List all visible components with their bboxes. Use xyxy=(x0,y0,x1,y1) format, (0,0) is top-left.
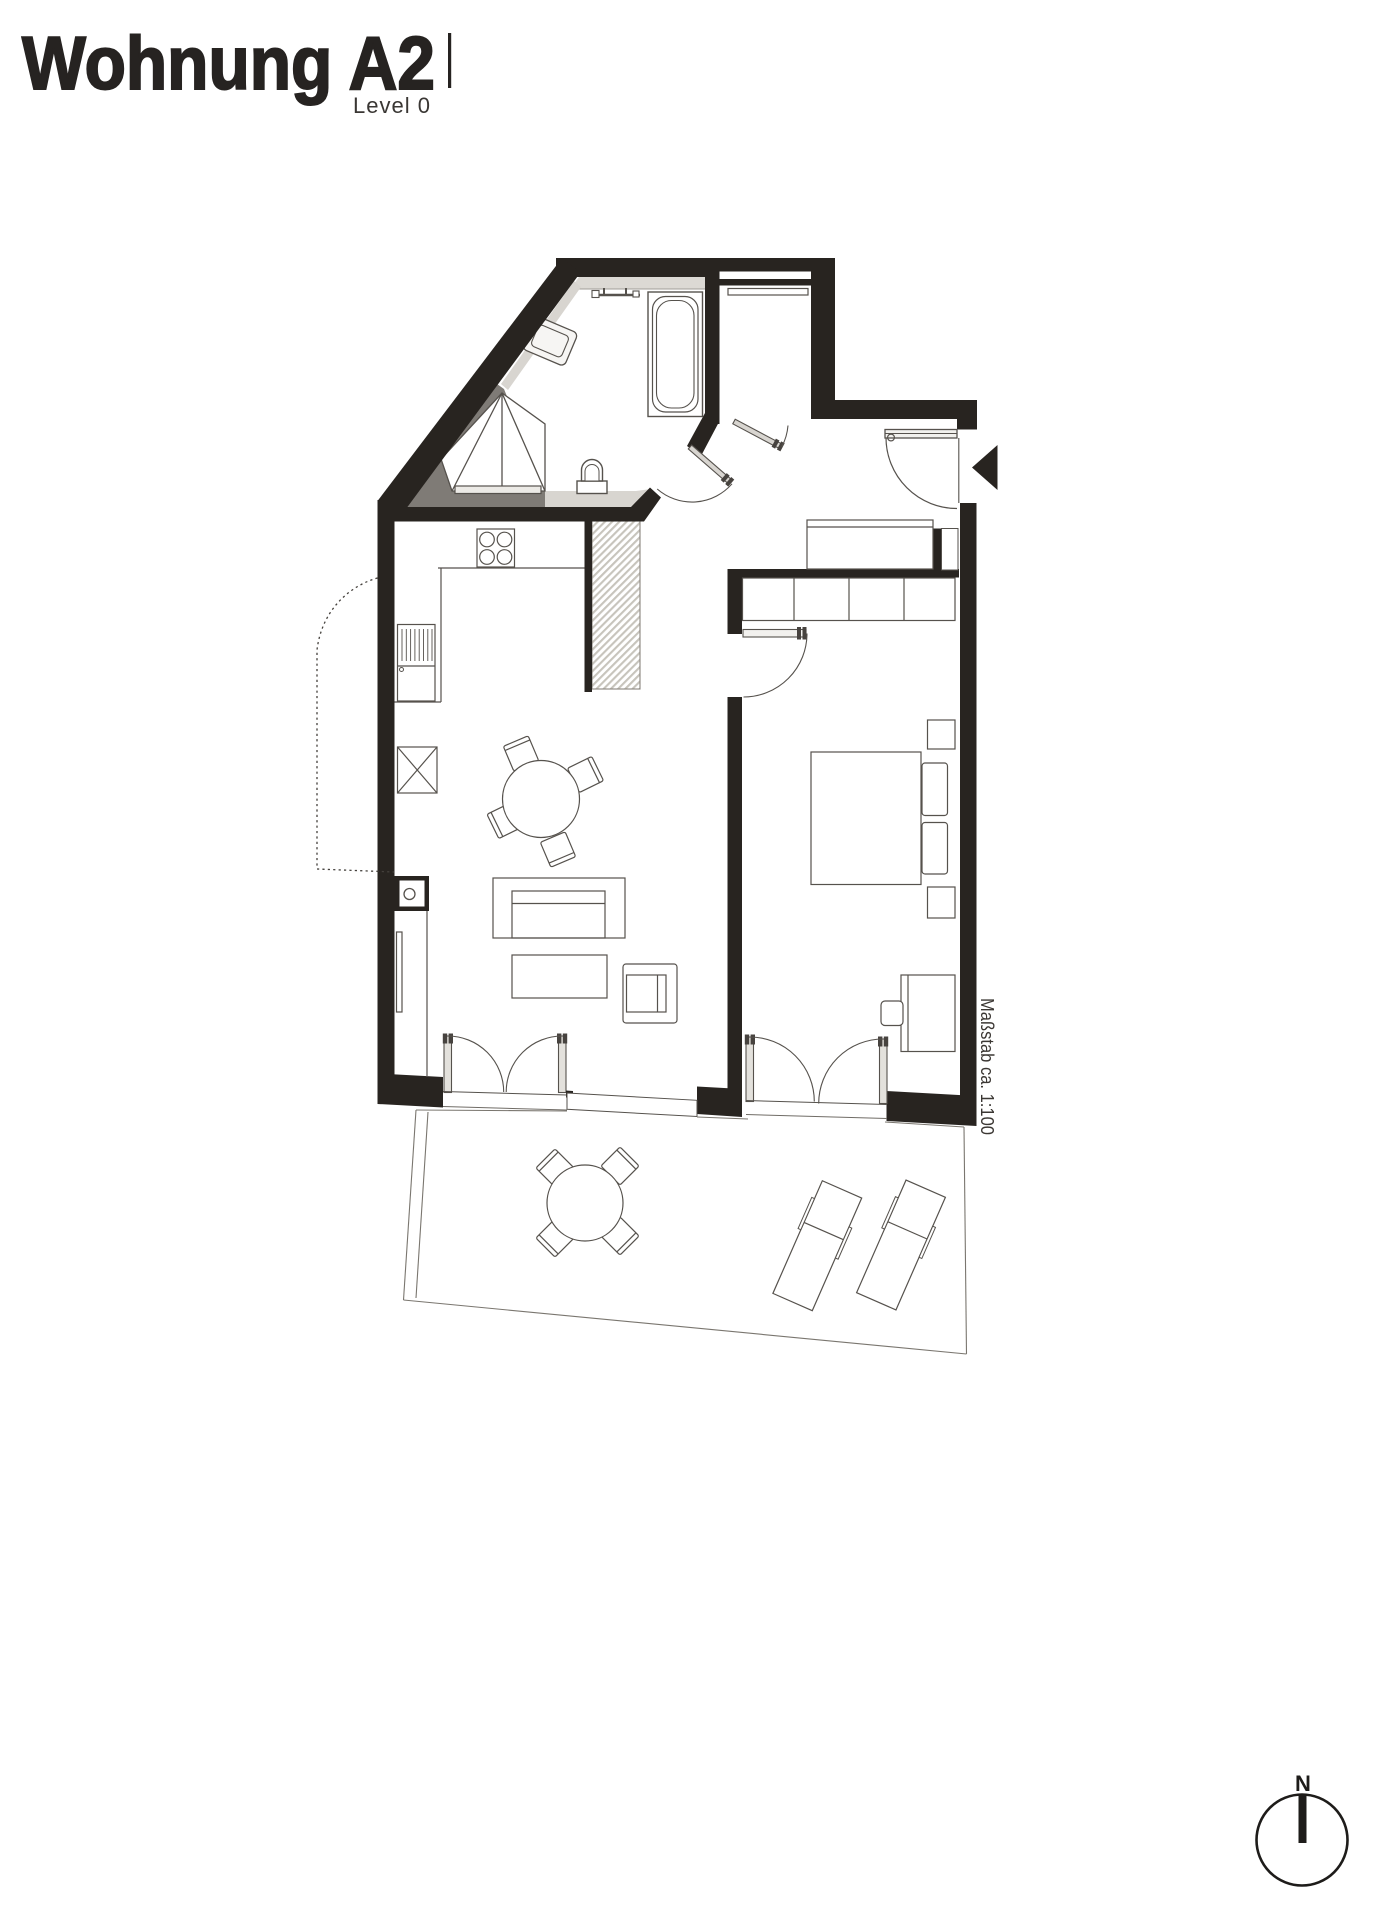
svg-text:Level 0: Level 0 xyxy=(353,93,431,118)
svg-text:Maßstab ca. 1:100: Maßstab ca. 1:100 xyxy=(977,998,997,1135)
svg-text:N: N xyxy=(1295,1771,1311,1796)
